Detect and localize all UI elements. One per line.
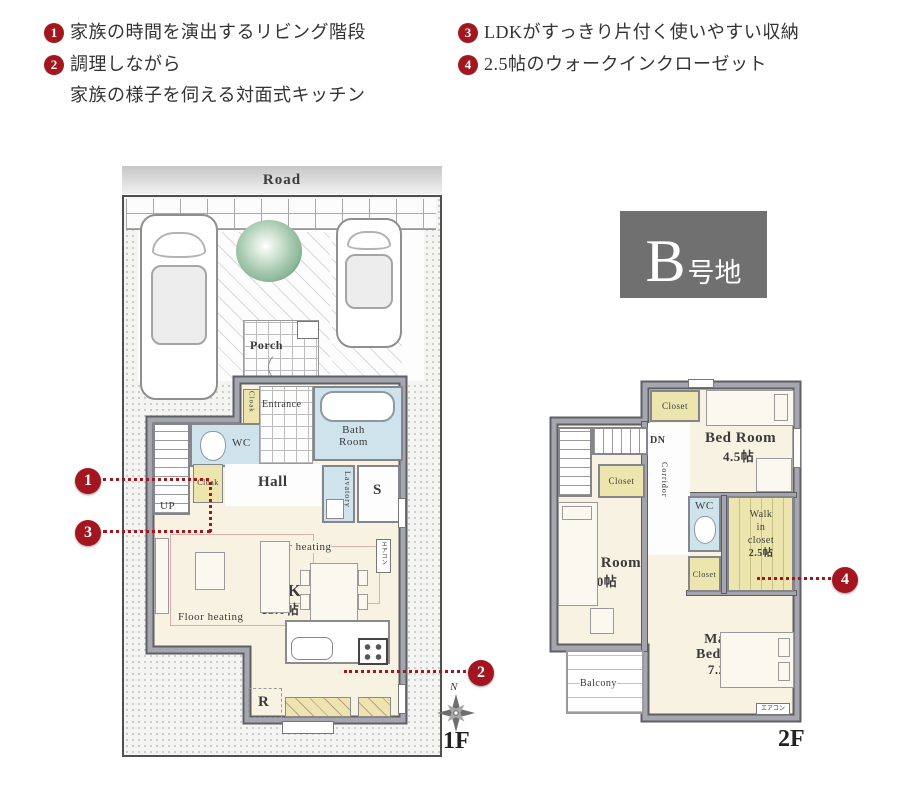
feature-2-text: 調理しながら: [70, 53, 181, 75]
marker-3: 3: [75, 520, 101, 546]
washer-icon: [326, 499, 344, 519]
cloak-entrance: Cloak: [243, 389, 260, 424]
window: [793, 428, 801, 468]
marker-2-line: [344, 670, 466, 673]
toilet-icon: [694, 516, 716, 544]
tv-board: [155, 538, 169, 614]
window: [398, 498, 406, 528]
floor-heating-label-2: Floor heating: [178, 611, 243, 623]
chair: [358, 570, 368, 586]
closet-small-label: Closet: [690, 570, 719, 579]
compass-rose-icon: [437, 694, 475, 732]
dn-label: DN: [650, 435, 665, 446]
lavatory: Lavatory: [322, 465, 355, 523]
corridor-label: Corridor: [660, 462, 669, 498]
aircon-box-2f: エアコン: [756, 703, 790, 715]
marker-1-line: [103, 478, 209, 481]
pillow: [774, 394, 788, 421]
cloak-entrance-label: Cloak: [248, 391, 256, 413]
marker-3-line-vertical: [209, 482, 212, 532]
floorplan-page: 1 家族の時間を演出するリビング階段 2 調理しながら 家族の様子を伺える対面式…: [0, 0, 900, 789]
entrance: [259, 386, 313, 464]
lot-letter: B: [645, 232, 685, 290]
lavatory-label: Lavatory: [343, 471, 352, 508]
dining-table: [310, 563, 358, 621]
feature-1-badge: 1: [44, 23, 64, 43]
aircon-label-2f: エアコン: [757, 704, 789, 714]
chair: [300, 570, 310, 586]
kitchen-stove: [358, 638, 388, 665]
road-band: Road: [122, 166, 442, 194]
bathtub-icon: [320, 391, 395, 422]
cloak-hall: Cloak: [193, 464, 223, 503]
lot-suffix: 号地: [688, 256, 742, 290]
desk: [756, 458, 792, 492]
window: [398, 684, 406, 714]
feature-1-text: 家族の時間を演出するリビング階段: [70, 21, 366, 43]
closet-mid-label: Closet: [600, 476, 643, 486]
closet-mid: Closet: [598, 464, 645, 498]
bath-label: BathRoom: [339, 424, 368, 448]
walk-in-closet-label: Walkincloset2.5帖: [742, 508, 780, 560]
living-table: [195, 552, 225, 590]
floor-2-label: 2F: [778, 726, 805, 753]
chair: [358, 594, 368, 610]
bed1-size: 4.5帖: [723, 446, 754, 465]
feature-2-text-line2: 家族の様子を伺える対面式キッチン: [70, 84, 365, 106]
pillow: [778, 638, 790, 657]
kitchen-sink: [291, 637, 333, 660]
up-label: UP: [160, 500, 175, 512]
wc-label-1f: WC: [232, 437, 251, 449]
wall: [641, 421, 648, 652]
door-opening: [688, 379, 714, 388]
pillow: [562, 506, 592, 520]
feature-4-badge: 4: [458, 55, 478, 75]
stairs-down: [558, 427, 592, 497]
closet-top: Closet: [650, 390, 700, 422]
closet-small: Closet: [688, 556, 721, 592]
compass-n-label: N: [450, 681, 458, 693]
road-label: Road: [263, 172, 301, 188]
terrace-step: [282, 721, 334, 734]
marker-4: 4: [832, 567, 858, 593]
hall-label: Hall: [258, 474, 288, 491]
chair: [300, 594, 310, 610]
cupboard: [358, 697, 391, 717]
marker-4-line: [757, 577, 831, 580]
entrance-label: Entrance: [262, 399, 302, 410]
marker-3-line: [103, 530, 211, 533]
aircon-label-1f: エアコン: [379, 541, 388, 565]
marker-1: 1: [75, 468, 101, 494]
storage-s-label: S: [373, 482, 382, 499]
sofa: [260, 541, 290, 613]
fridge-label: R: [258, 694, 269, 711]
stairs-down-top-run: [592, 427, 648, 455]
bed1-label: Bed Room: [705, 430, 776, 447]
wc-label-2f: WC: [695, 500, 714, 512]
floor-1-label: 1F: [443, 728, 470, 755]
feature-3-text: LDKがすっきり片付く使いやすい収納: [484, 21, 799, 43]
balcony-label: Balcony: [580, 678, 617, 689]
lot-label: B号地: [620, 211, 767, 298]
pillow: [778, 662, 790, 681]
cupboard: [285, 697, 351, 717]
feature-4-text: 2.5帖のウォークインクローゼット: [484, 53, 767, 75]
toilet-icon: [200, 431, 226, 461]
closet-top-label: Closet: [652, 401, 698, 411]
desk: [590, 608, 614, 634]
feature-2-badge: 2: [44, 55, 64, 75]
marker-2: 2: [468, 660, 494, 686]
feature-3-badge: 3: [458, 23, 478, 43]
aircon-box-1f: エアコン: [376, 539, 391, 573]
